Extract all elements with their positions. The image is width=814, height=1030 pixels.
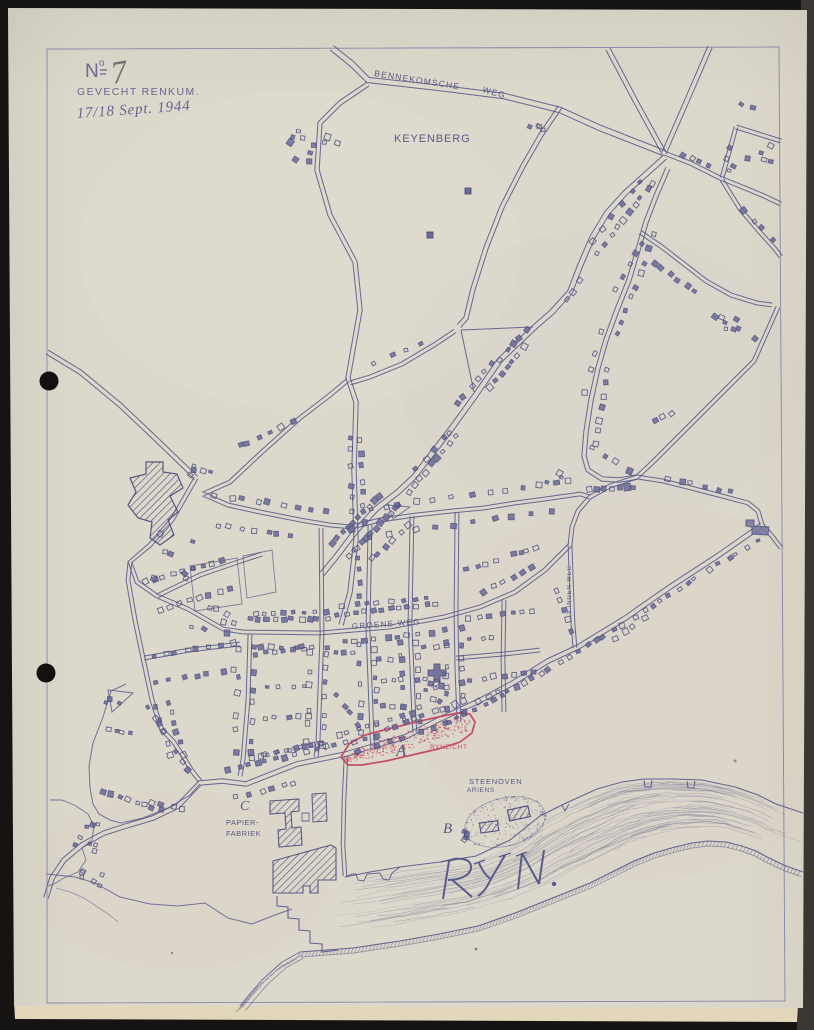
svg-text:STEENOVEN: STEENOVEN [469,777,522,786]
svg-text:C: C [240,799,250,814]
svg-text:KEYENBERG: KEYENBERG [394,133,471,145]
svg-text:FABRIEK: FABRIEK [226,829,261,838]
svg-text:GEVECHT RENKUM.: GEVECHT RENKUM. [77,86,200,98]
svg-text:o: o [99,58,105,69]
svg-text:A: A [395,741,407,760]
svg-text:V.INGEN WEG: V.INGEN WEG [567,565,573,614]
svg-text:PAPIER-: PAPIER- [226,818,259,827]
svg-text:D: D [431,677,440,689]
svg-text:N: N [85,61,99,82]
svg-text:B: B [443,821,452,837]
svg-text:RYNZICHT: RYNZICHT [430,744,468,751]
svg-text:ARIENS: ARIENS [467,787,495,794]
